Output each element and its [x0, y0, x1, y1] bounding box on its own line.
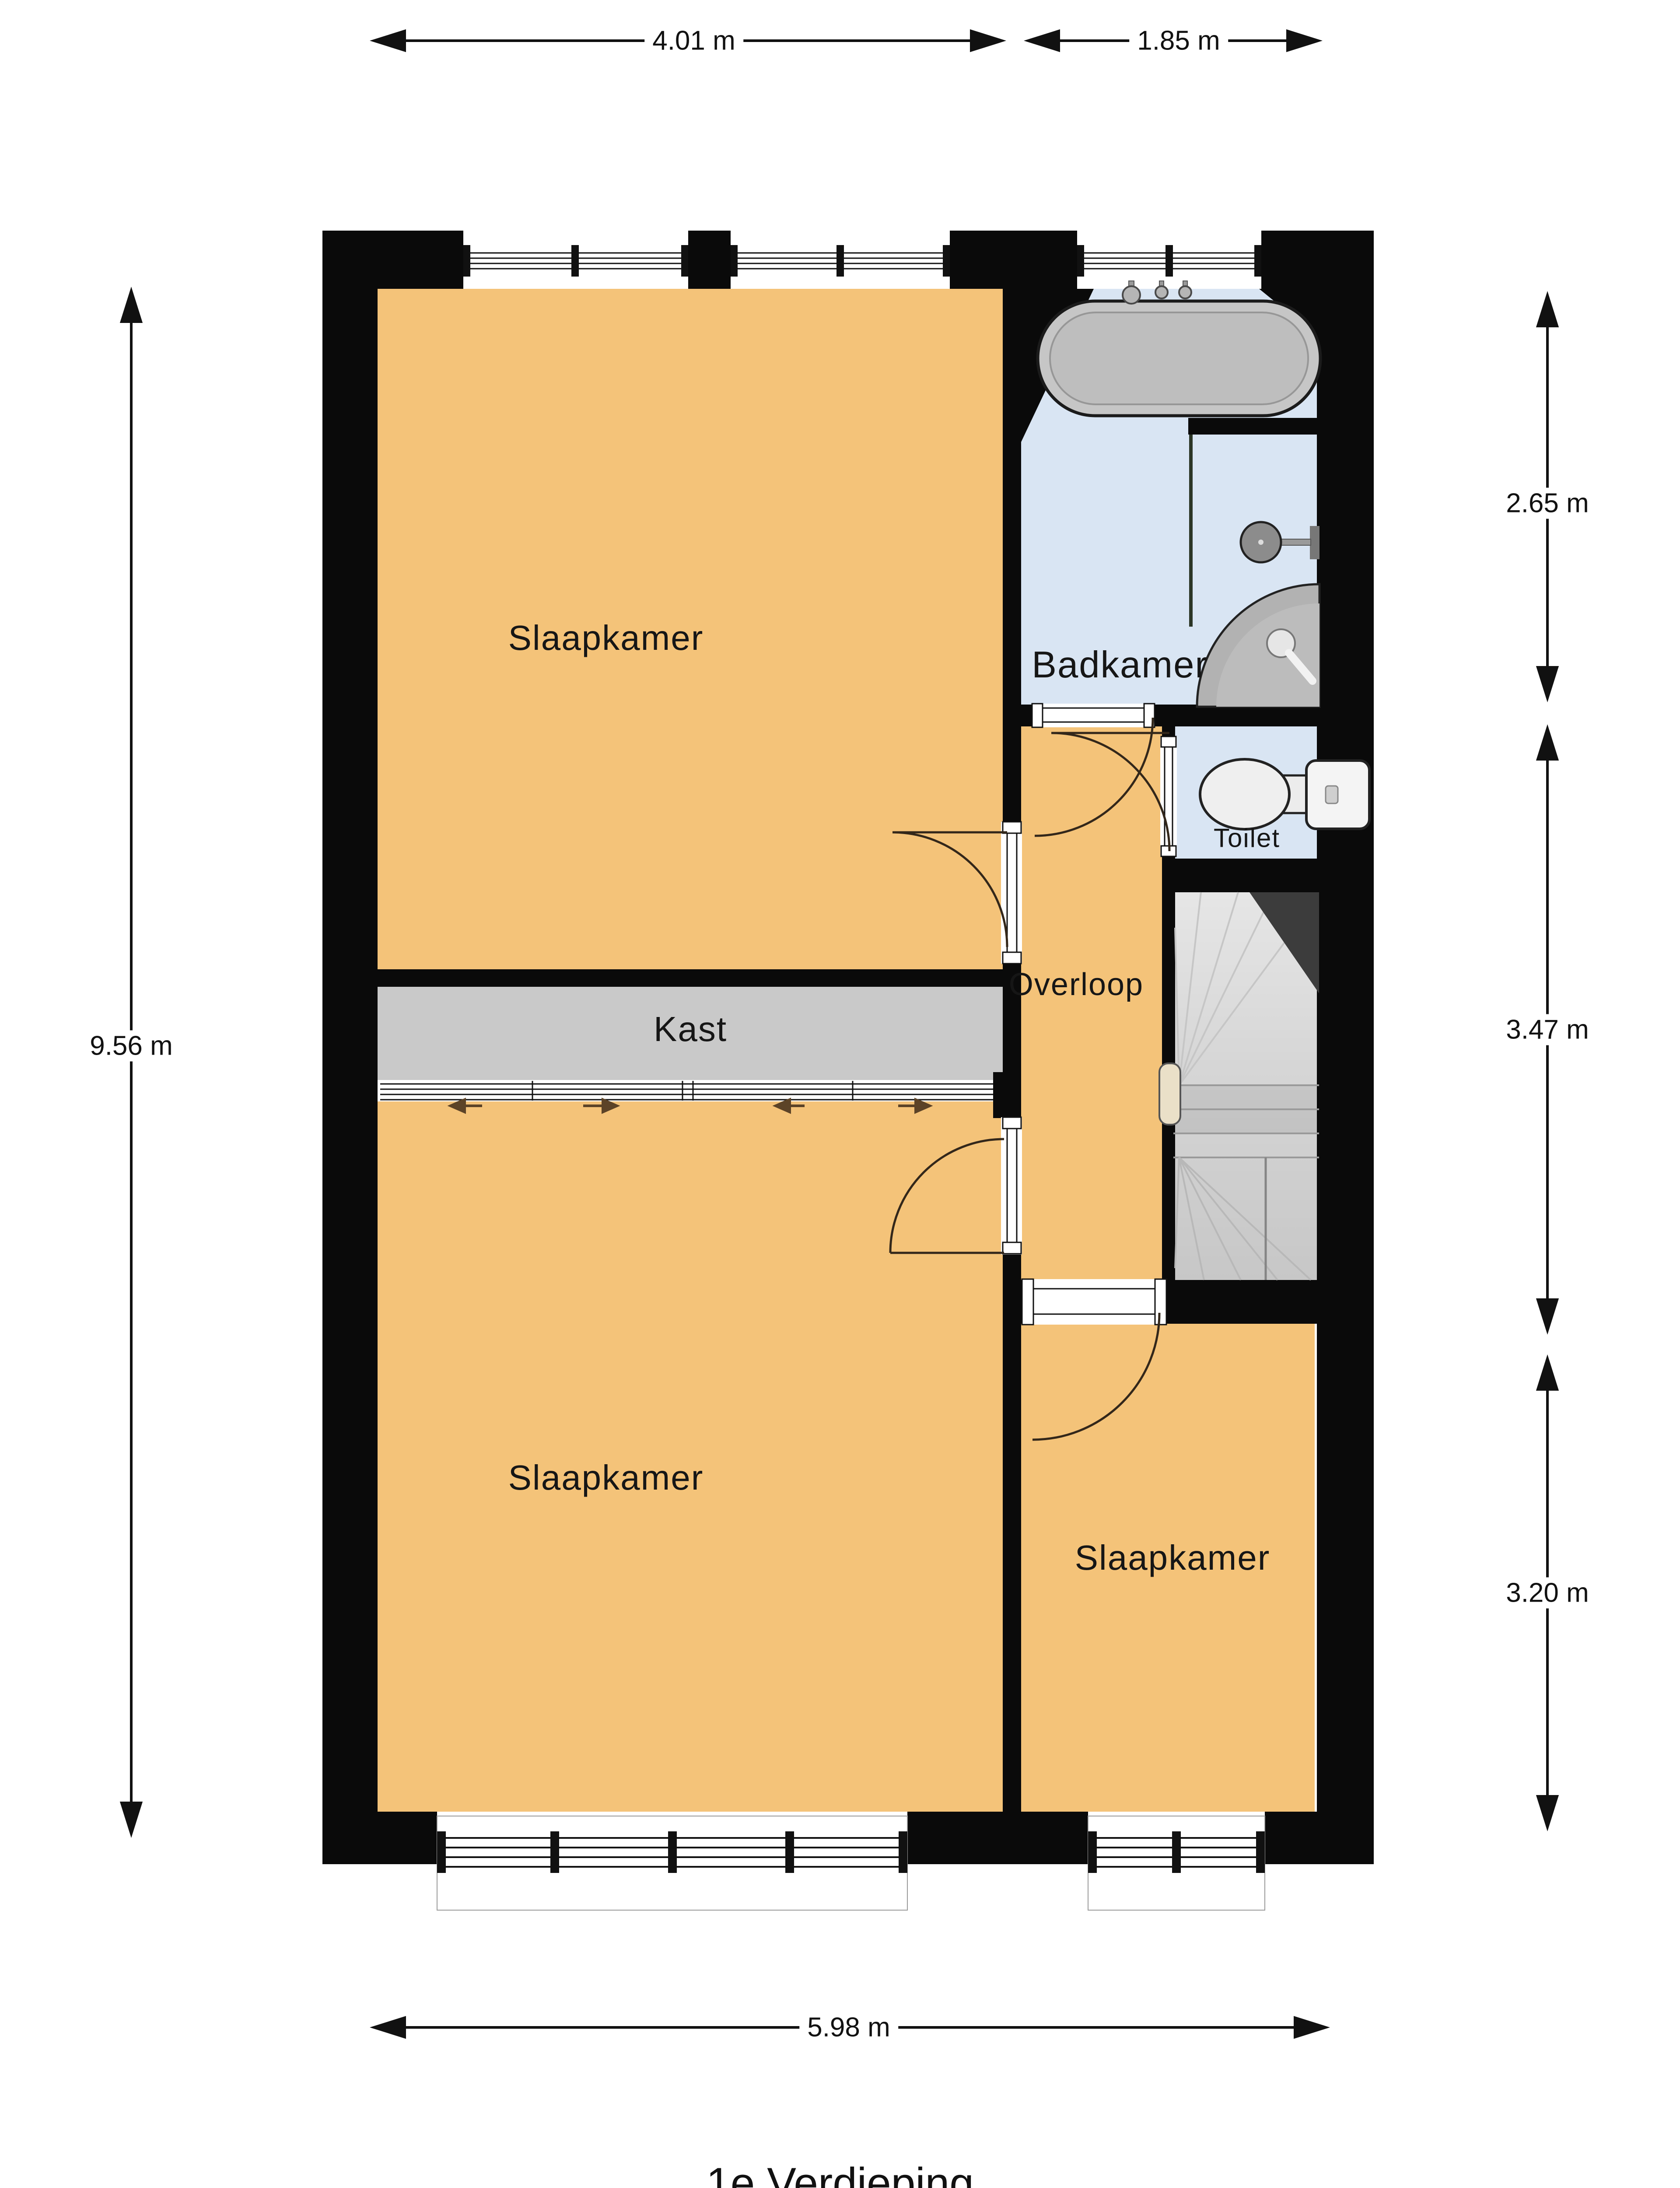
- door-opening-bathroom: [1032, 704, 1155, 727]
- dimension-left: 9.56 m: [82, 1031, 181, 1062]
- dimension-top-right: 1.85 m: [1129, 25, 1228, 56]
- door-opening-bedroom-top: [1001, 822, 1022, 964]
- dimension-bottom: 5.98 m: [799, 2012, 898, 2043]
- room-label-bedroom-top: Slaapkamer: [508, 618, 704, 658]
- room-label-toilet: Toilet: [1214, 823, 1280, 853]
- plan-linework: [0, 0, 1680, 2188]
- room-label-bedroom-right: Slaapkamer: [1075, 1538, 1270, 1578]
- page-title: 1e Verdieping: [706, 2159, 974, 2188]
- toilet-icon: [1200, 759, 1369, 829]
- sliding-door-arrows: [451, 1100, 930, 1112]
- room-label-landing: Overloop: [1009, 967, 1144, 1003]
- dimension-right-bottom: 3.20 m: [1498, 1578, 1597, 1609]
- dimension-right-middle: 3.47 m: [1498, 1014, 1597, 1045]
- dimension-right-top: 2.65 m: [1498, 488, 1597, 519]
- room-label-bedroom-bottom: Slaapkamer: [508, 1458, 704, 1498]
- window-top-1: [463, 231, 688, 288]
- stairs-icon: [1159, 892, 1319, 1280]
- sliding-door-closet: [378, 1080, 993, 1101]
- dimension-arrows: [122, 31, 1557, 2037]
- dimension-top-left: 4.01 m: [644, 25, 743, 56]
- room-label-bathroom: Badkamer: [1032, 644, 1208, 687]
- shower-icon: [1241, 522, 1319, 562]
- bath-partition-wall: [1188, 418, 1319, 435]
- door-swings: [890, 718, 1169, 1440]
- window-top-2: [731, 231, 950, 288]
- window-bottom-2: [1088, 1816, 1265, 1910]
- sink-icon: [1197, 584, 1319, 707]
- window-top-3: [1077, 231, 1261, 288]
- door-opening-bedroom-right: [1022, 1279, 1166, 1325]
- floor-plan: Slaapkamer Slaapkamer Slaapkamer Badkame…: [0, 0, 1680, 2188]
- window-bottom-1: [437, 1816, 907, 1910]
- door-opening-bedroom-bottom: [1001, 1117, 1022, 1255]
- handrail-icon: [1159, 1063, 1180, 1125]
- room-label-closet: Kast: [654, 1009, 727, 1049]
